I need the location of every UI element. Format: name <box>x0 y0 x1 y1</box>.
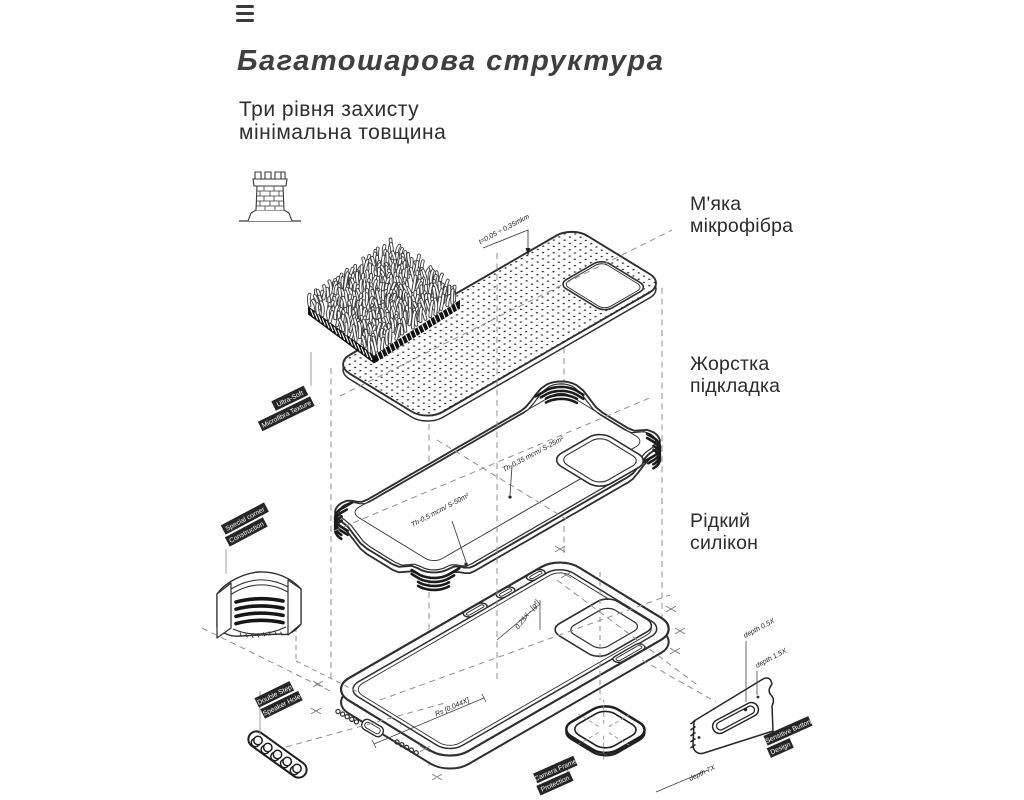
svg-text:depth 1.5X: depth 1.5X <box>755 647 788 669</box>
svg-text:t=0,05 ÷ 0,35mkm: t=0,05 ÷ 0,35mkm <box>478 213 531 246</box>
svg-text:depth 7X: depth 7X <box>688 764 717 783</box>
svg-text:depth 0.5X: depth 0.5X <box>743 617 776 639</box>
